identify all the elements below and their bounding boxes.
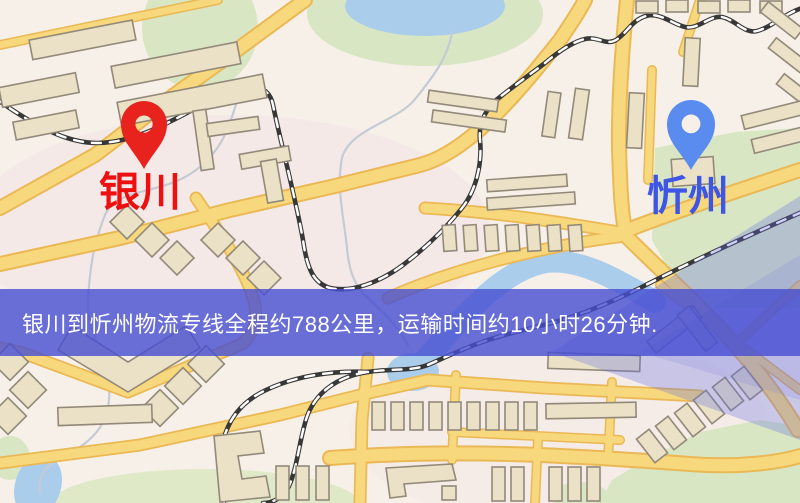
origin-pin-icon bbox=[119, 99, 169, 170]
destination-label: 忻州 bbox=[628, 176, 748, 216]
pin-shape bbox=[121, 101, 167, 169]
route-info-text: 银川到忻州物流专线全程约788公里，运输时间约10小时26分钟. bbox=[22, 307, 658, 339]
map-screenshot: 银川 忻州 银川到忻州物流专线全程约788公里，运输时间约10小时26分钟. bbox=[0, 0, 800, 503]
map-canvas[interactable] bbox=[0, 0, 800, 503]
destination-marker[interactable] bbox=[665, 98, 717, 171]
route-info-banner: 银川到忻州物流专线全程约788公里，运输时间约10小时26分钟. bbox=[0, 289, 800, 356]
pin-shape bbox=[667, 100, 715, 170]
origin-label: 银川 bbox=[80, 172, 200, 212]
destination-pin-icon bbox=[665, 98, 717, 171]
origin-marker[interactable] bbox=[119, 99, 169, 170]
